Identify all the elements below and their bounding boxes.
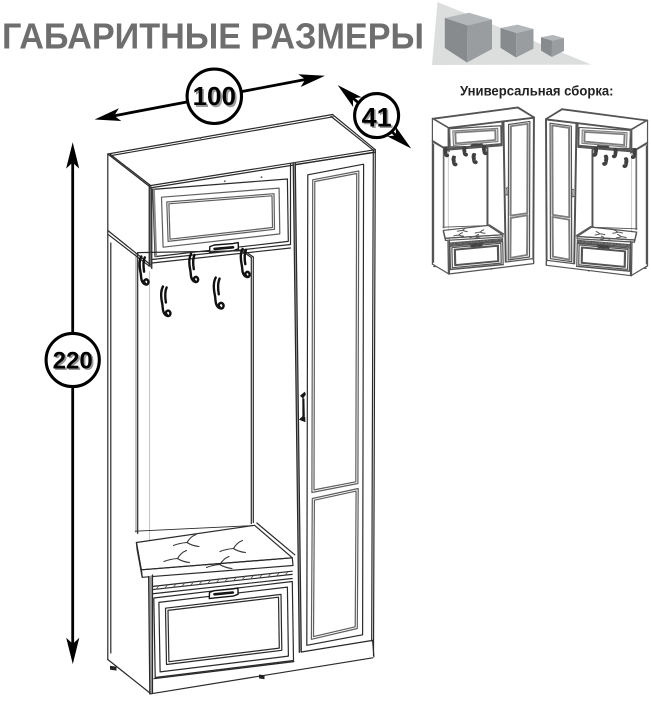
svg-text:41: 41: [362, 103, 392, 133]
svg-text:Универсальная сборка:: Универсальная сборка:: [460, 84, 614, 99]
svg-text:220: 220: [53, 348, 93, 375]
svg-text:100: 100: [193, 81, 236, 111]
svg-text:ГАБАРИТНЫЕ РАЗМЕРЫ: ГАБАРИТНЫЕ РАЗМЕРЫ: [2, 16, 424, 57]
